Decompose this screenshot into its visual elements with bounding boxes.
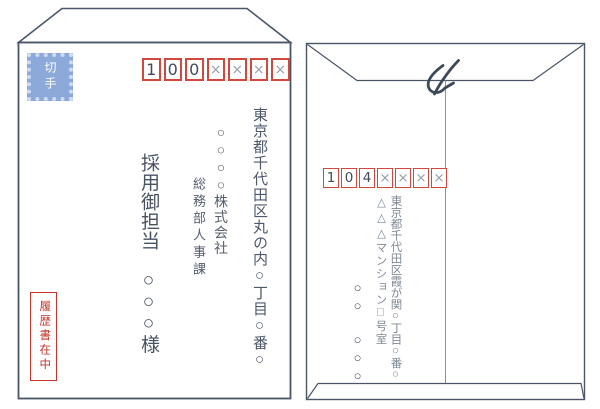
postal-digit: × (377, 168, 393, 188)
postage-stamp: 切手 (27, 53, 73, 101)
postal-digit: × (395, 168, 411, 188)
sender-address-line2: △△△マンション□号室 (374, 195, 386, 346)
postal-digit: 1 (323, 168, 339, 188)
recipient-department: 総務部人事課 (192, 177, 205, 279)
recipient-name: 採用御担当 ○○○様 (139, 153, 158, 354)
postal-digit: × (228, 58, 247, 81)
envelope-outlines (0, 0, 600, 409)
recipient-company: ○○○○株式会社 (214, 124, 228, 256)
back-postal-code-boxes: 1 0 4 × × × × (323, 168, 447, 188)
postal-digit: × (431, 168, 447, 188)
stamp-label: 切手 (44, 61, 56, 93)
postal-digit: × (250, 58, 269, 81)
postal-digit: 0 (164, 58, 183, 81)
recipient-address: 東京都千代田区丸の内○丁目○番○ (252, 107, 267, 369)
front-envelope-flap (19, 9, 291, 43)
postal-digit: 1 (142, 58, 161, 81)
sender-name: ○○ ○○○ (351, 280, 364, 386)
front-postal-code-boxes: 1 0 0 × × × × (142, 58, 290, 81)
envelope-addressing-diagram: 切手 1 0 0 × × × × 東京都千代田区丸の内○丁目○番○ ○○○○株式… (0, 0, 600, 409)
postal-digit: 4 (359, 168, 375, 188)
postal-digit: × (413, 168, 429, 188)
postal-digit: × (271, 58, 290, 81)
sender-address: 東京都千代田区霞が関○丁目○番○ (389, 195, 401, 381)
enclosure-stamp: 履歴書在中 (30, 292, 57, 381)
enclosure-stamp-label: 履歴書在中 (38, 300, 50, 373)
back-envelope-outline (307, 44, 585, 400)
postal-digit: 0 (185, 58, 204, 81)
postal-digit: 0 (341, 168, 357, 188)
postal-digit: × (207, 58, 226, 81)
